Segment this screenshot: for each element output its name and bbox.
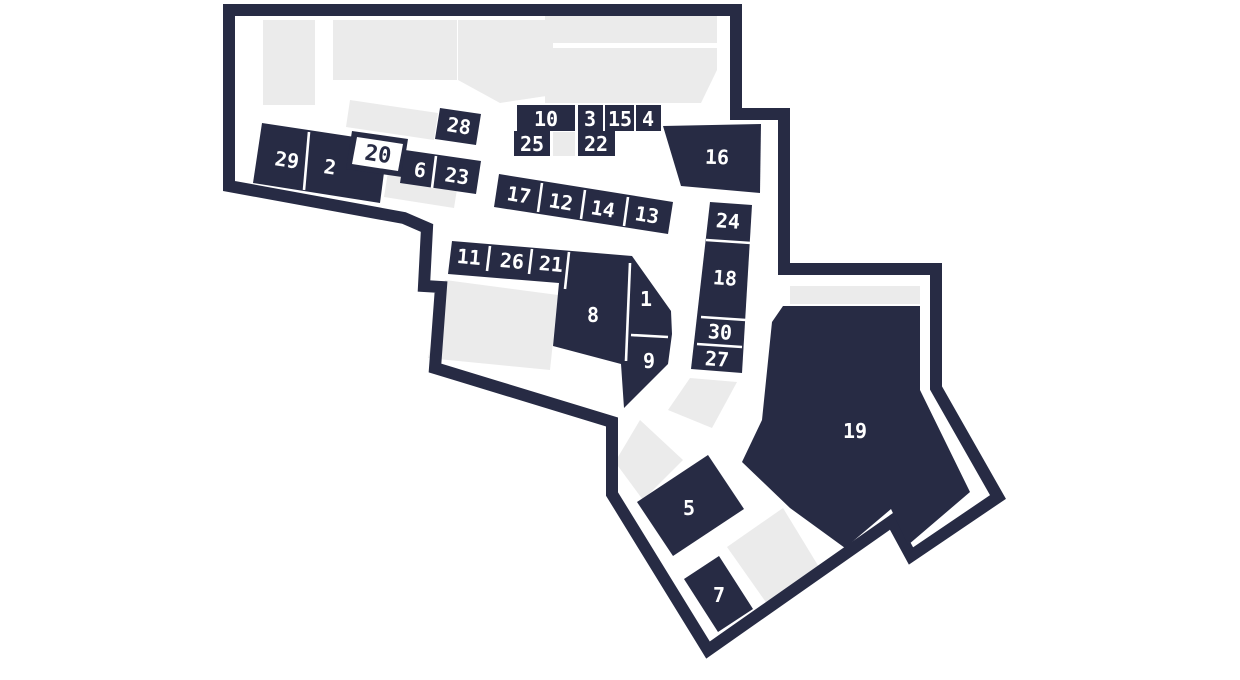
floor-plan-svg: 29 2 20 6 23 28 10 3 15 4 25 22 16 17 12…: [0, 0, 1240, 680]
unit-28[interactable]: [435, 108, 481, 145]
area-top-strip-3: [545, 16, 717, 43]
unit-22[interactable]: [578, 131, 615, 156]
area-left-of-8: [428, 280, 558, 370]
area-top-strip-4: [545, 48, 717, 103]
area-top-left: [263, 20, 315, 105]
unit-3[interactable]: [578, 105, 603, 131]
area-between-25-22: [553, 132, 575, 156]
area-top-strip-1: [333, 20, 457, 80]
area-above-19: [790, 286, 920, 304]
unit-4[interactable]: [636, 105, 661, 131]
unit-10[interactable]: [517, 105, 575, 131]
unit-25[interactable]: [514, 131, 550, 156]
unit-15[interactable]: [605, 105, 634, 131]
floor-plan-page: 29 2 20 6 23 28 10 3 15 4 25 22 16 17 12…: [0, 0, 1240, 680]
